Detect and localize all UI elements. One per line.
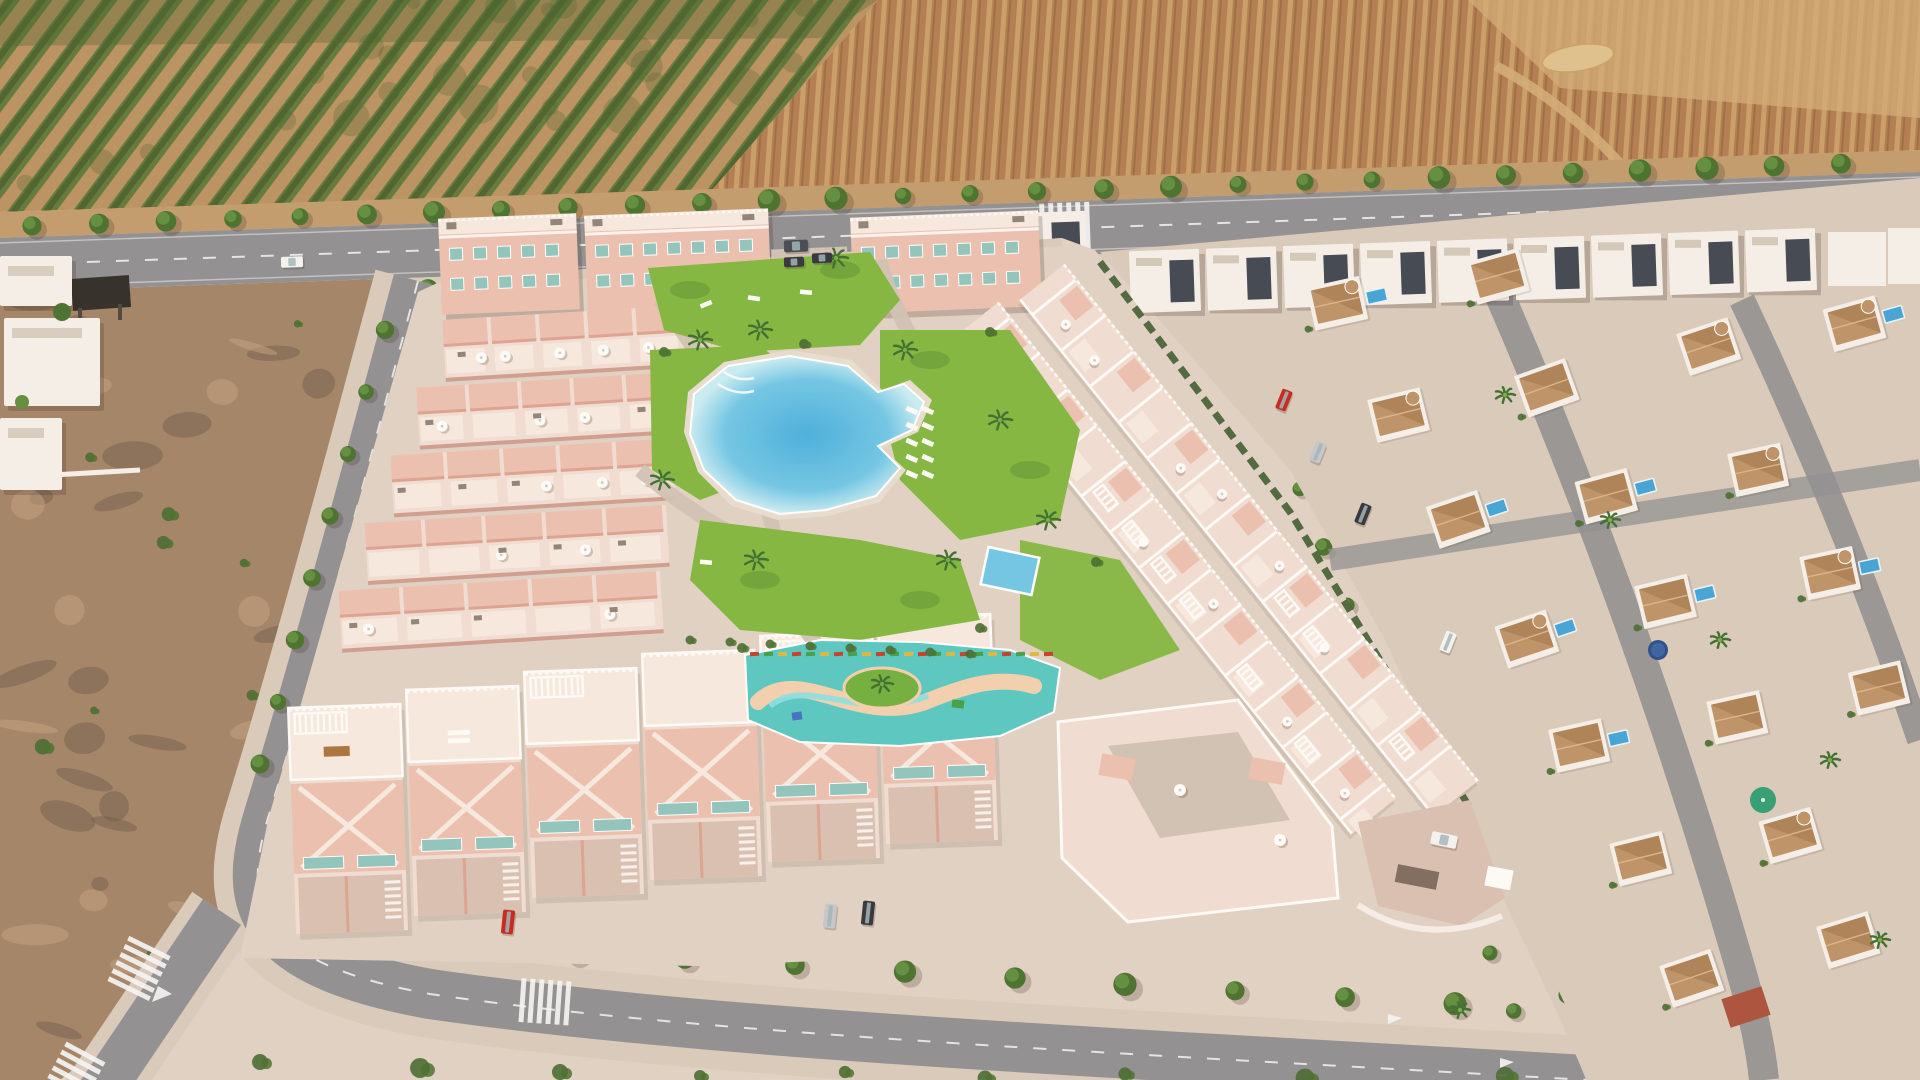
aerial-render xyxy=(0,0,1920,1080)
aerial-render-canvas xyxy=(0,0,1920,1080)
